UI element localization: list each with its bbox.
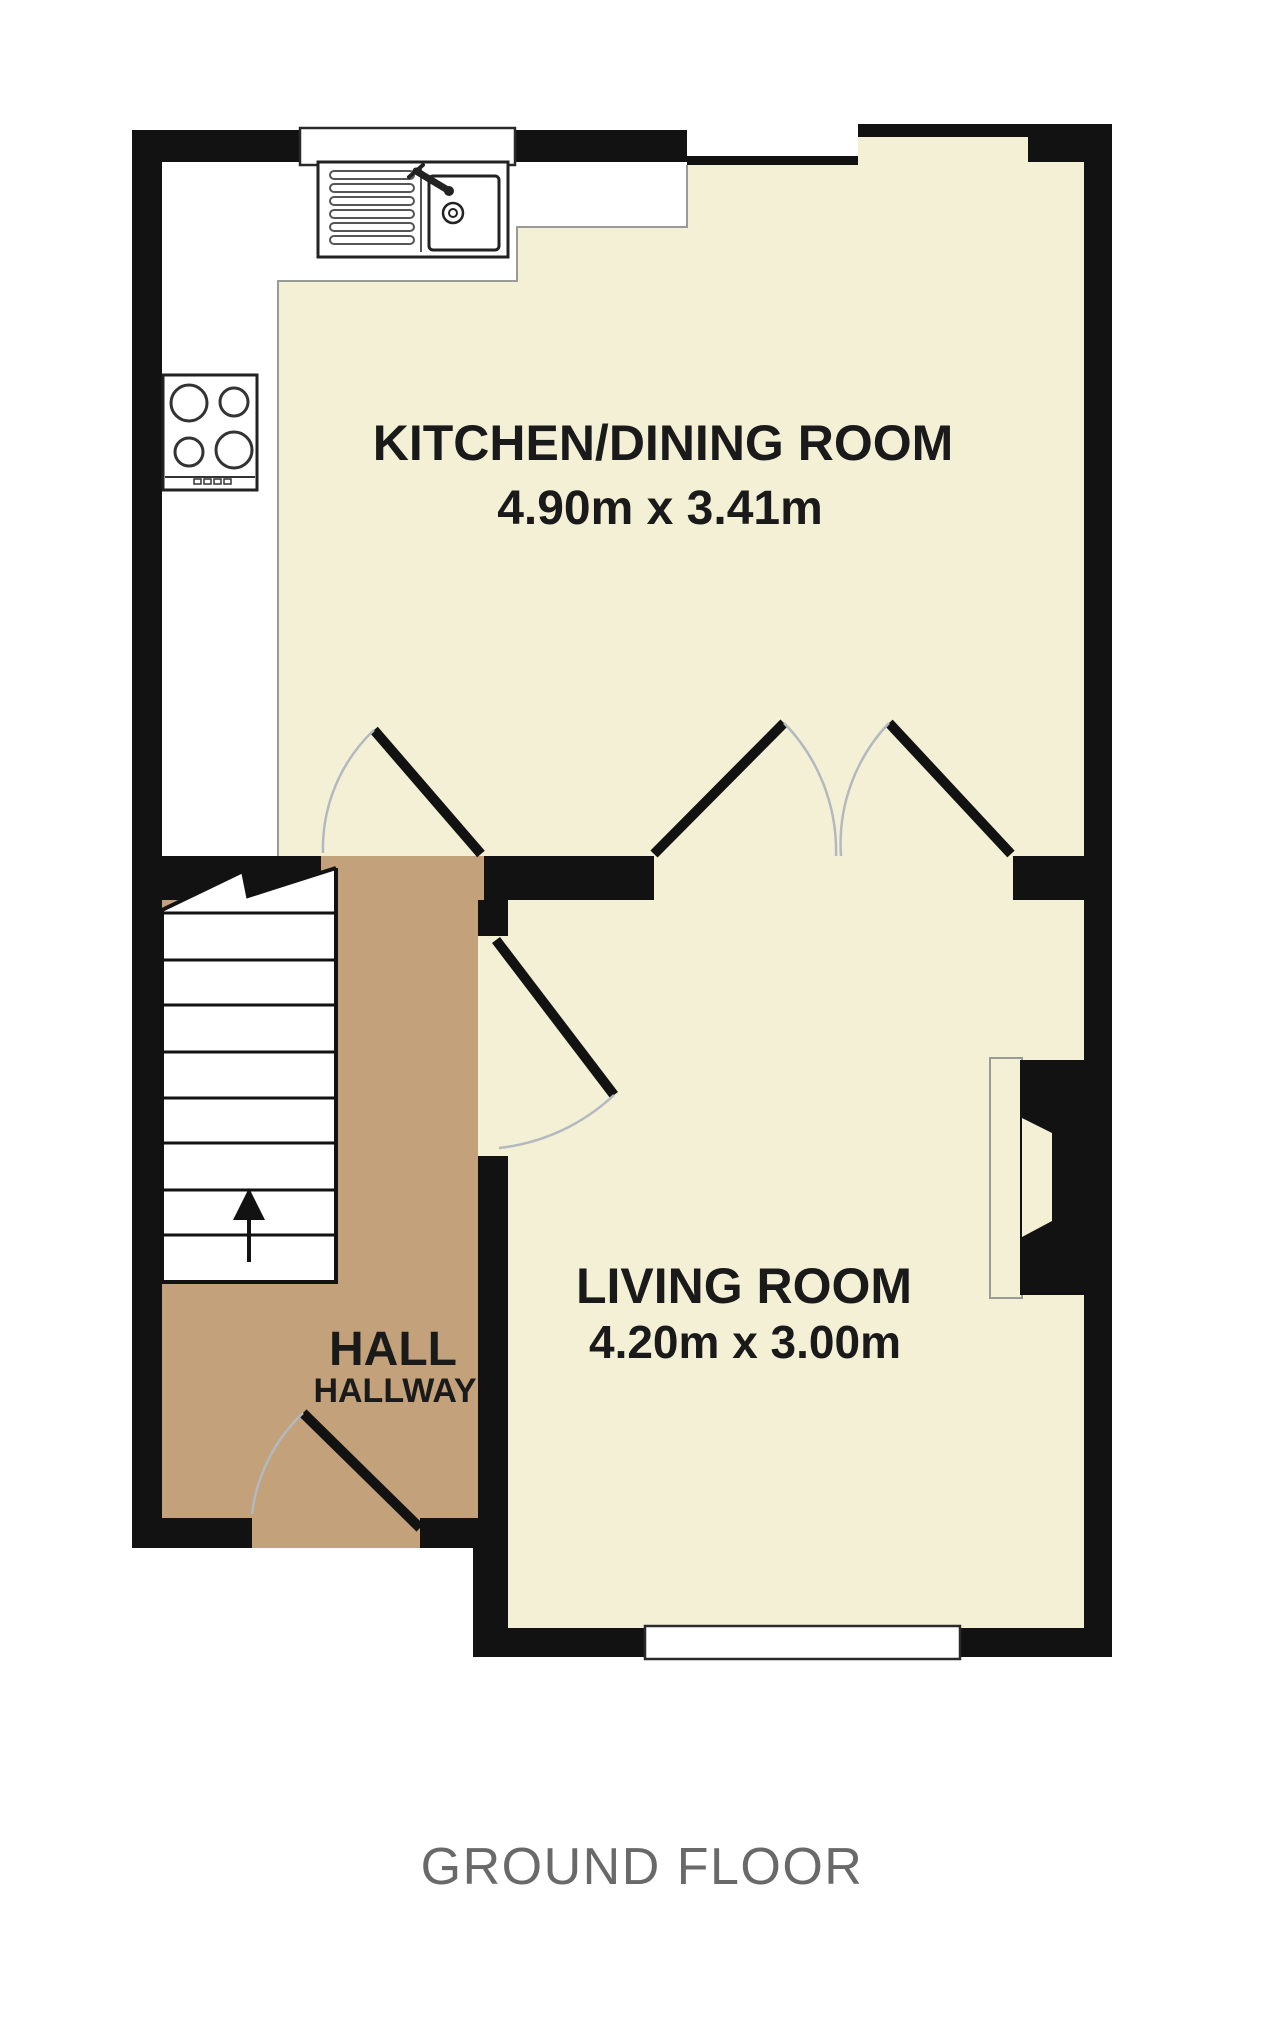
wall-divider-b <box>484 856 654 900</box>
floorplan-page: KITCHEN/DINING ROOM 4.90m x 3.41m LIVING… <box>0 0 1280 2028</box>
kitchen-label: KITCHEN/DINING ROOM <box>373 415 954 471</box>
wall-right <box>1084 124 1112 1657</box>
wall-top-a <box>132 130 300 162</box>
hall-door-opening-floor <box>321 856 484 902</box>
wall-top-thin <box>858 124 1030 137</box>
living-room-label: LIVING ROOM <box>576 1258 912 1314</box>
kitchen-window <box>300 128 515 165</box>
hall-label: HALL <box>329 1323 457 1376</box>
wall-hall-bottom-a <box>132 1518 252 1548</box>
double-door-opening-floor <box>654 856 1013 902</box>
fireplace-icon <box>990 1058 1084 1298</box>
wall-living-bottom-a <box>473 1628 645 1657</box>
counter-top-run <box>517 162 687 227</box>
living-room-dimensions: 4.20m x 3.00m <box>589 1316 901 1368</box>
wall-hall-bottom-b <box>420 1518 478 1548</box>
wall-top-sill-line <box>687 156 858 165</box>
wall-left <box>132 130 162 1548</box>
hob-icon <box>163 375 257 490</box>
counter-left-run <box>162 162 278 856</box>
kitchen-sink-icon <box>318 162 508 257</box>
wall-hall-living <box>478 1156 508 1550</box>
kitchen-dimensions: 4.90m x 3.41m <box>497 482 823 535</box>
hallway-sublabel: HALLWAY <box>313 1372 476 1410</box>
wall-top-b <box>515 130 687 162</box>
floor-caption: GROUND FLOOR <box>421 1838 864 1896</box>
wall-living-bottom-b <box>960 1628 1112 1657</box>
wall-divider-c <box>1013 856 1084 900</box>
floor-plan-svg: KITCHEN/DINING ROOM 4.90m x 3.41m LIVING… <box>0 0 1280 2028</box>
living-room-window <box>645 1626 960 1659</box>
fireplace-hearth <box>990 1058 1022 1298</box>
wall-hall-living-top-stub <box>478 900 508 936</box>
fireplace-recess <box>1022 1118 1052 1237</box>
front-door-opening-floor <box>252 1518 420 1548</box>
living-door-opening-floor <box>478 936 508 1156</box>
staircase-icon <box>162 868 336 1282</box>
